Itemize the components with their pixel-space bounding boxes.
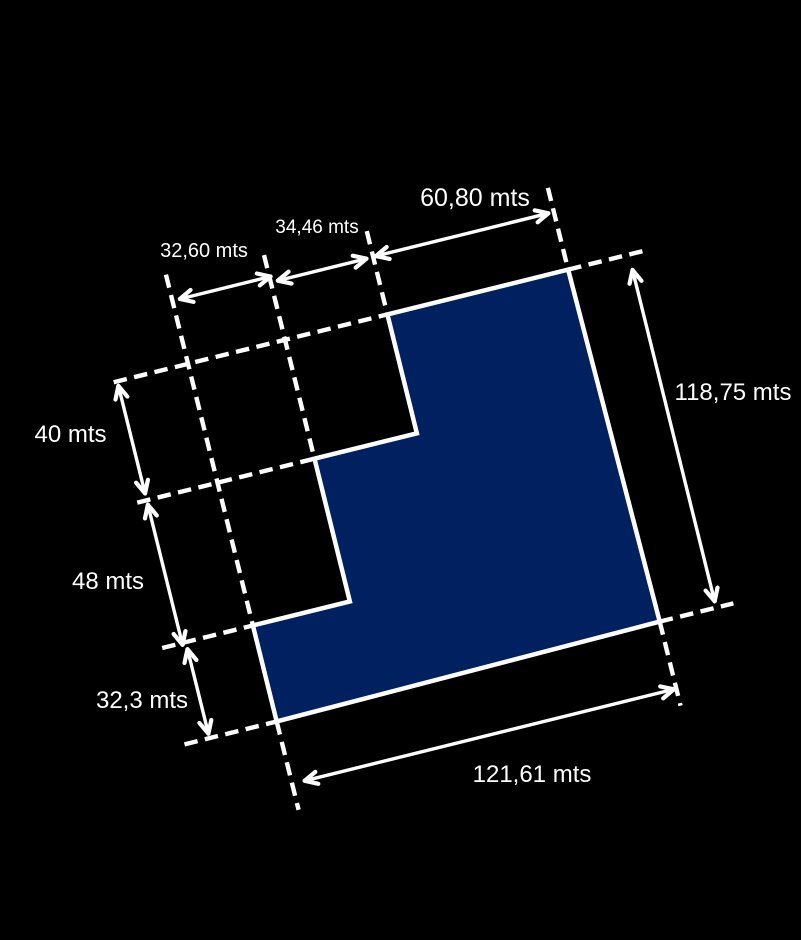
svg-text:34,46 mts: 34,46 mts xyxy=(275,217,358,238)
svg-text:48 mts: 48 mts xyxy=(72,568,144,595)
svg-text:121,61 mts: 121,61 mts xyxy=(473,761,592,788)
svg-text:118,75 mts: 118,75 mts xyxy=(675,379,792,406)
svg-text:32,3 mts: 32,3 mts xyxy=(96,687,188,714)
svg-text:60,80 mts: 60,80 mts xyxy=(420,184,530,212)
svg-text:40 mts: 40 mts xyxy=(34,421,106,448)
svg-text:32,60 mts: 32,60 mts xyxy=(160,240,248,262)
